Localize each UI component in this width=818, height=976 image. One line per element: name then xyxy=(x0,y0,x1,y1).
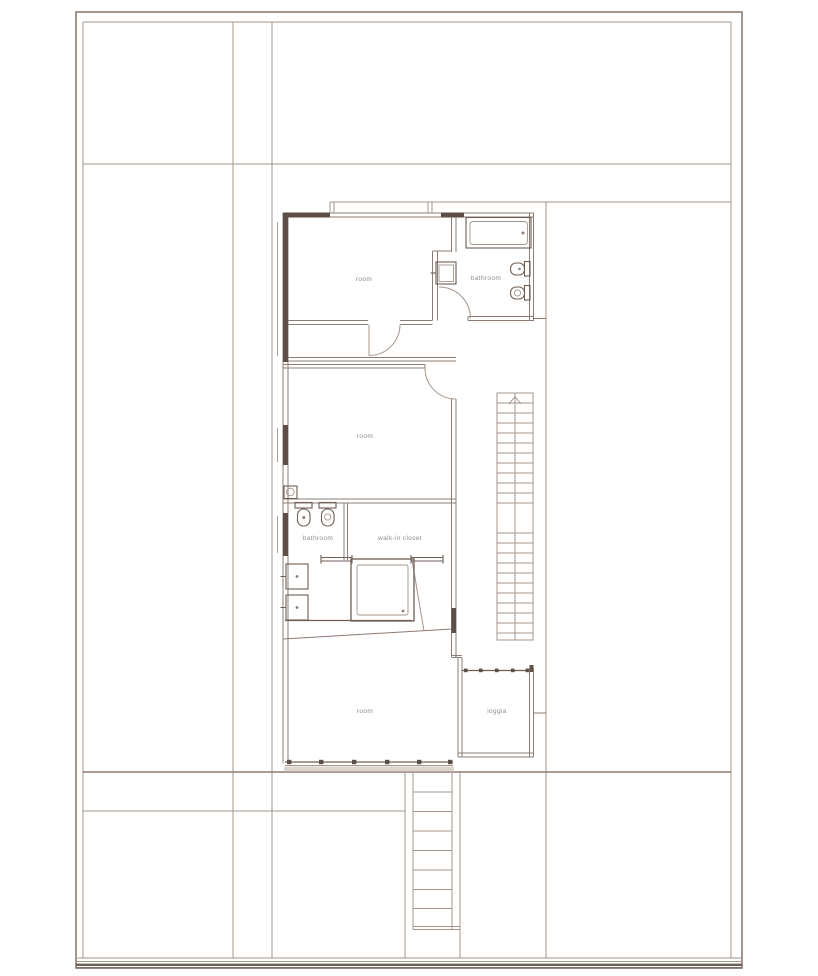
label-loggia: loggia xyxy=(487,708,506,715)
glazed-wall-bottom xyxy=(284,760,454,772)
inner-border xyxy=(83,22,731,958)
toilet xyxy=(511,262,531,277)
room-labels: room bathroom room bathroom walk-in clos… xyxy=(303,275,507,715)
door-arc-hall xyxy=(369,325,400,356)
bidet xyxy=(319,503,336,527)
boiler xyxy=(284,486,297,499)
bottom-edge-band xyxy=(76,958,742,968)
label-bathroom-lower: bathroom xyxy=(303,535,333,542)
door-arc-middle-room xyxy=(425,368,456,399)
label-room-middle: room xyxy=(357,433,373,440)
staircase-down xyxy=(405,773,460,958)
staircase-up xyxy=(497,393,533,640)
unit-walls xyxy=(278,213,547,764)
label-bathroom-top: bathroom xyxy=(471,275,501,282)
label-room-bottom: room xyxy=(357,708,373,715)
label-walk-in-closet: walk-in closet xyxy=(377,535,422,542)
washbasin xyxy=(431,262,457,284)
door-swings xyxy=(369,287,471,399)
bathtub xyxy=(466,218,531,249)
shower xyxy=(351,559,414,621)
bidet xyxy=(511,286,531,301)
floor-plan-page: room bathroom room bathroom walk-in clos… xyxy=(0,0,818,976)
double-washbasin xyxy=(281,564,309,620)
toilet xyxy=(295,503,312,527)
diagonal-wall xyxy=(283,629,452,639)
door-arc-bathroom xyxy=(439,287,471,319)
stair-treads xyxy=(413,792,452,909)
grid-lines xyxy=(83,22,731,958)
outer-border xyxy=(76,12,742,968)
floor-plan-drawing: room bathroom room bathroom walk-in clos… xyxy=(0,0,818,976)
label-room-top: room xyxy=(356,276,372,283)
